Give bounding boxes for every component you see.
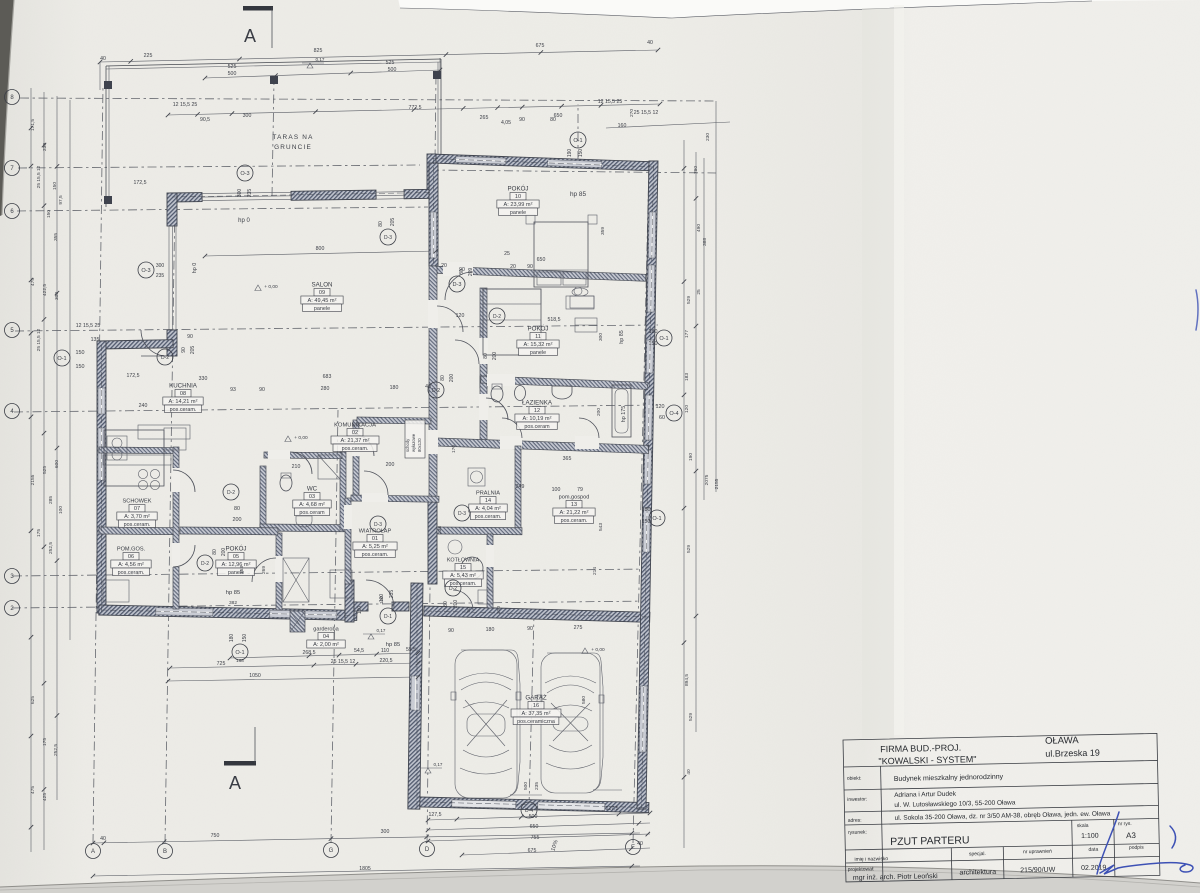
svg-text:D-1: D-1 <box>384 614 392 620</box>
svg-text:09: 09 <box>319 290 325 296</box>
svg-text:490: 490 <box>696 224 702 232</box>
svg-text:90: 90 <box>519 117 525 123</box>
svg-text:175: 175 <box>42 738 48 746</box>
svg-text:garderoba: garderoba <box>313 627 339 633</box>
svg-text:275: 275 <box>574 625 583 631</box>
svg-text:265: 265 <box>480 115 489 121</box>
svg-text:1805: 1805 <box>359 866 371 872</box>
svg-text:97,5: 97,5 <box>58 195 64 205</box>
svg-text:D-2: D-2 <box>201 561 209 567</box>
svg-text:KOMUNIKACJA: KOMUNIKACJA <box>334 423 376 429</box>
svg-text:panele: panele <box>314 306 330 312</box>
svg-text:359: 359 <box>600 227 606 235</box>
svg-text:235: 235 <box>156 273 165 279</box>
svg-text:110: 110 <box>381 648 389 654</box>
svg-text:200: 200 <box>221 548 227 557</box>
svg-text:+ 0,00: + 0,00 <box>591 647 605 653</box>
svg-text:0,17: 0,17 <box>316 57 325 62</box>
svg-text:790: 790 <box>693 166 699 174</box>
svg-text:40: 40 <box>425 384 431 390</box>
svg-text:FIRMA BUD.-PROJ.: FIRMA BUD.-PROJ. <box>880 743 961 755</box>
svg-text:650: 650 <box>554 113 563 119</box>
svg-text:500: 500 <box>388 67 397 73</box>
svg-text:135: 135 <box>91 337 100 343</box>
svg-text:TARAS NA: TARAS NA <box>272 134 313 141</box>
svg-text:220,5: 220,5 <box>380 658 393 664</box>
svg-text:79: 79 <box>577 487 583 493</box>
svg-text:355: 355 <box>53 233 59 241</box>
svg-text:D-3: D-3 <box>384 235 392 241</box>
svg-text:171,5: 171,5 <box>30 119 36 131</box>
svg-text:pos.ceram: pos.ceram <box>524 424 550 430</box>
svg-text:16: 16 <box>533 703 539 709</box>
svg-text:O-1: O-1 <box>652 516 661 522</box>
svg-text:750: 750 <box>211 833 220 839</box>
svg-text:100: 100 <box>357 606 363 615</box>
svg-text:obiekt:: obiekt: <box>847 776 862 782</box>
svg-text:D-2: D-2 <box>493 314 501 320</box>
svg-text:inwestor:: inwestor: <box>847 797 867 803</box>
svg-text:hp 175: hp 175 <box>621 406 627 423</box>
svg-text:architektura: architektura <box>959 869 996 877</box>
svg-text:205: 205 <box>190 346 196 355</box>
svg-text:O-3: O-3 <box>240 171 249 177</box>
svg-text:A: 23,99 m²: A: 23,99 m² <box>504 202 533 208</box>
svg-text:214: 214 <box>592 567 598 575</box>
svg-text:2155: 2155 <box>714 478 720 489</box>
svg-text:90: 90 <box>466 607 472 613</box>
svg-text:panele: panele <box>530 350 546 356</box>
svg-text:hp 85: hp 85 <box>570 191 586 198</box>
svg-text:93: 93 <box>230 387 236 393</box>
svg-text:365: 365 <box>563 456 572 462</box>
svg-text:200: 200 <box>449 374 455 383</box>
svg-text:120: 120 <box>656 404 665 410</box>
svg-text:pos.ceram.: pos.ceram. <box>124 522 151 528</box>
svg-text:O-1: O-1 <box>573 138 582 144</box>
svg-text:330: 330 <box>199 376 208 382</box>
svg-text:pos.ceram.: pos.ceram. <box>118 570 145 576</box>
svg-text:175: 175 <box>36 529 42 537</box>
svg-text:40: 40 <box>647 40 653 46</box>
svg-text:pom.gospod: pom.gospod <box>559 495 590 501</box>
svg-text:pos.ceram: pos.ceram <box>299 510 325 516</box>
svg-text:08: 08 <box>180 391 186 397</box>
svg-text:200: 200 <box>492 352 498 361</box>
svg-text:525: 525 <box>228 64 237 70</box>
svg-text:80: 80 <box>378 221 384 227</box>
svg-text:nr uprawnień: nr uprawnień <box>1023 849 1052 856</box>
svg-text:skala: skala <box>1077 823 1089 829</box>
svg-text:252,5: 252,5 <box>48 542 54 554</box>
svg-text:183: 183 <box>684 373 690 381</box>
svg-text:02: 02 <box>352 430 358 436</box>
svg-text:D-2: D-2 <box>432 388 440 394</box>
svg-text:683: 683 <box>323 374 332 380</box>
svg-text:25: 25 <box>696 289 702 295</box>
svg-text:POM.GOS.: POM.GOS. <box>117 547 146 553</box>
svg-text:529: 529 <box>686 545 692 553</box>
svg-text:150: 150 <box>76 364 85 370</box>
svg-text:54,5: 54,5 <box>354 648 364 654</box>
svg-text:280: 280 <box>321 386 330 392</box>
svg-text:825: 825 <box>314 48 323 54</box>
svg-text:12 15,5 25: 12 15,5 25 <box>173 102 198 108</box>
svg-text:hp 0: hp 0 <box>238 218 250 224</box>
svg-text:imię i nazwisko: imię i nazwisko <box>854 856 888 863</box>
svg-text:529: 529 <box>686 296 692 304</box>
svg-text:pos.ceram.: pos.ceram. <box>342 446 369 452</box>
svg-text:180: 180 <box>649 329 658 335</box>
svg-text:90: 90 <box>527 626 533 632</box>
svg-text:20: 20 <box>441 263 447 269</box>
svg-text:422,5: 422,5 <box>42 284 48 296</box>
svg-text:625: 625 <box>30 696 36 704</box>
svg-text:D-3: D-3 <box>374 522 382 528</box>
svg-text:235: 235 <box>389 590 395 599</box>
svg-text:0,17: 0,17 <box>377 628 386 633</box>
svg-text:0,17: 0,17 <box>434 762 443 767</box>
svg-text:rysunek:: rysunek: <box>848 830 867 836</box>
svg-text:POKÓJ: POKÓJ <box>508 186 529 193</box>
svg-text:13: 13 <box>571 502 577 508</box>
svg-text:80: 80 <box>440 375 446 381</box>
svg-text:55,5: 55,5 <box>406 647 416 653</box>
svg-text:G: G <box>329 848 334 854</box>
svg-text:90: 90 <box>527 264 533 270</box>
svg-text:300: 300 <box>156 263 165 269</box>
svg-text:hp 0: hp 0 <box>192 263 198 274</box>
svg-text:A: 5,25 m²: A: 5,25 m² <box>362 544 388 550</box>
svg-text:hp 85: hp 85 <box>226 590 241 596</box>
svg-text:pos.ceram.: pos.ceram. <box>170 407 197 413</box>
svg-text:D-4: D-4 <box>525 808 533 814</box>
svg-text:01: 01 <box>372 536 378 542</box>
svg-text:specjal.: specjal. <box>969 851 986 857</box>
svg-text:177: 177 <box>684 330 690 338</box>
svg-text:800: 800 <box>316 246 325 252</box>
svg-text:150: 150 <box>52 182 58 190</box>
svg-text:14: 14 <box>485 498 491 504</box>
svg-text:ŁAZIENKA: ŁAZIENKA <box>522 400 553 407</box>
svg-text:150: 150 <box>242 634 248 643</box>
svg-text:12: 12 <box>534 408 540 414</box>
svg-text:80x120: 80x120 <box>417 438 422 452</box>
svg-text:2155: 2155 <box>30 474 36 485</box>
svg-text:PRALNIA: PRALNIA <box>476 491 500 497</box>
svg-text:A: 10,19 m²: A: 10,19 m² <box>523 416 552 422</box>
svg-text:D-2: D-2 <box>227 490 235 496</box>
svg-text:80: 80 <box>483 353 489 359</box>
svg-text:300: 300 <box>237 189 243 198</box>
svg-text:190: 190 <box>567 149 573 158</box>
svg-text:300: 300 <box>598 333 604 341</box>
svg-text:schody: schody <box>405 438 410 452</box>
svg-text:A3: A3 <box>1126 831 1137 840</box>
svg-text:1:100: 1:100 <box>1081 833 1099 840</box>
svg-text:25 15,5 12: 25 15,5 12 <box>331 659 356 665</box>
svg-text:40: 40 <box>637 841 643 847</box>
svg-text:300: 300 <box>381 829 390 835</box>
svg-text:529: 529 <box>688 713 694 721</box>
svg-text:285: 285 <box>48 496 54 504</box>
svg-text:A: 2,00 m²: A: 2,00 m² <box>313 642 339 648</box>
svg-text:12 15,5 25: 12 15,5 25 <box>76 323 101 329</box>
svg-text:hp 85: hp 85 <box>619 330 625 344</box>
svg-text:500: 500 <box>523 782 529 790</box>
svg-text:4,05: 4,05 <box>501 120 511 126</box>
svg-text:Adriana i Artur Dudek: Adriana i Artur Dudek <box>894 791 957 799</box>
svg-text:GARAŻ: GARAŻ <box>525 695 547 702</box>
svg-text:A: 15,32 m²: A: 15,32 m² <box>524 342 553 348</box>
svg-text:120: 120 <box>684 405 690 413</box>
svg-text:pos.ceram.: pos.ceram. <box>561 518 588 524</box>
svg-text:KOTŁOWNIA: KOTŁOWNIA <box>447 558 480 564</box>
svg-text:90: 90 <box>187 334 193 340</box>
svg-text:543: 543 <box>598 523 604 531</box>
svg-text:382: 382 <box>229 600 237 606</box>
svg-text:225: 225 <box>144 53 153 59</box>
svg-text:+ 0,00: + 0,00 <box>264 284 278 290</box>
svg-text:pos.ceram.: pos.ceram. <box>475 514 502 520</box>
svg-text:500: 500 <box>228 71 237 77</box>
svg-text:D-2: D-2 <box>449 586 457 592</box>
svg-text:A: 37,35 m²: A: 37,35 m² <box>522 711 551 717</box>
svg-text:100: 100 <box>58 506 64 514</box>
svg-text:25 15,5 12: 25 15,5 12 <box>36 328 42 351</box>
svg-text:pos.ceramiczna: pos.ceramiczna <box>517 719 555 725</box>
svg-text:180: 180 <box>642 507 651 513</box>
svg-text:60: 60 <box>659 415 665 421</box>
svg-text:podpis: podpis <box>1129 845 1144 851</box>
svg-text:POKÓJ: POKÓJ <box>528 326 549 333</box>
svg-text:200: 200 <box>596 408 602 416</box>
svg-text:projektował:: projektował: <box>848 866 875 873</box>
svg-text:235: 235 <box>534 782 540 790</box>
svg-text:150: 150 <box>46 210 52 218</box>
svg-text:180: 180 <box>486 627 495 633</box>
svg-text:05: 05 <box>233 554 239 560</box>
svg-text:200: 200 <box>453 600 459 609</box>
svg-text:268,5: 268,5 <box>303 650 316 656</box>
svg-text:475: 475 <box>30 786 36 794</box>
svg-text:WC: WC <box>307 486 318 493</box>
svg-text:894,5: 894,5 <box>684 674 690 686</box>
svg-text:D: D <box>425 847 430 853</box>
svg-text:518,5: 518,5 <box>548 317 561 323</box>
svg-text:25 15,5 12: 25 15,5 12 <box>36 165 42 188</box>
svg-text:100: 100 <box>552 487 561 493</box>
svg-text:580: 580 <box>581 696 587 704</box>
svg-text:03: 03 <box>309 494 315 500</box>
svg-text:90: 90 <box>259 387 265 393</box>
svg-text:SALON: SALON <box>312 282 333 289</box>
svg-text:235: 235 <box>247 189 253 198</box>
svg-text:675: 675 <box>528 848 537 854</box>
svg-text:SCHOWEK: SCHOWEK <box>123 499 152 505</box>
svg-text:127,5: 127,5 <box>429 812 442 818</box>
svg-text:230: 230 <box>705 133 711 141</box>
svg-text:A: A <box>229 773 241 793</box>
svg-text:525: 525 <box>386 60 395 66</box>
svg-text:A: 21,22 m²: A: 21,22 m² <box>560 510 589 516</box>
svg-text:269: 269 <box>261 566 267 574</box>
svg-text:A: A <box>244 26 256 46</box>
svg-text:11: 11 <box>535 334 541 340</box>
svg-text:150: 150 <box>649 341 658 347</box>
svg-text:O-1: O-1 <box>57 356 66 362</box>
svg-text:650: 650 <box>530 824 539 830</box>
svg-text:160: 160 <box>618 123 627 129</box>
svg-text:nr rys.: nr rys. <box>1118 821 1132 827</box>
svg-text:2075: 2075 <box>704 474 710 485</box>
svg-text:A: 4,68 m²: A: 4,68 m² <box>299 502 325 508</box>
svg-text:238: 238 <box>437 526 443 534</box>
svg-text:A: 12,96 m²: A: 12,96 m² <box>222 562 251 568</box>
svg-text:205: 205 <box>390 218 396 227</box>
svg-text:PZUT PARTERU: PZUT PARTERU <box>890 834 970 848</box>
svg-text:KUCHNIA: KUCHNIA <box>169 383 198 390</box>
svg-text:data: data <box>1088 847 1098 853</box>
svg-text:B: B <box>163 849 167 855</box>
svg-text:04: 04 <box>323 634 329 640</box>
svg-text:O-4: O-4 <box>669 411 678 417</box>
svg-text:D-3: D-3 <box>452 282 461 288</box>
svg-text:25 15,5 12: 25 15,5 12 <box>634 110 659 116</box>
svg-text:90: 90 <box>459 267 465 273</box>
svg-text:A: 14,21 m²: A: 14,21 m² <box>169 399 198 405</box>
svg-text:200: 200 <box>496 606 502 614</box>
svg-text:200: 200 <box>233 517 242 523</box>
svg-text:"KOWALSKI - SYSTEM": "KOWALSKI - SYSTEM" <box>878 754 976 766</box>
svg-text:06: 06 <box>128 554 134 560</box>
svg-text:675: 675 <box>536 43 545 49</box>
svg-text:127,5: 127,5 <box>606 806 619 812</box>
svg-text:215/90/UW: 215/90/UW <box>1020 867 1056 875</box>
svg-text:168: 168 <box>236 658 244 663</box>
svg-text:252,5: 252,5 <box>53 744 59 756</box>
svg-text:270: 270 <box>629 109 635 117</box>
svg-text:O-1: O-1 <box>235 650 244 656</box>
svg-text:150: 150 <box>578 149 584 158</box>
svg-text:80: 80 <box>443 601 449 607</box>
svg-text:POKÓJ: POKÓJ <box>226 546 247 553</box>
svg-text:OŁAWA: OŁAWA <box>1045 735 1079 747</box>
svg-text:GRUNCIE: GRUNCIE <box>274 144 312 151</box>
svg-text:725: 725 <box>217 661 226 667</box>
svg-text:panele: panele <box>510 210 526 216</box>
svg-text:90,5: 90,5 <box>200 117 210 123</box>
svg-text:200: 200 <box>386 462 395 468</box>
svg-text:180: 180 <box>229 634 235 643</box>
svg-text:500: 500 <box>529 814 538 820</box>
svg-text:07: 07 <box>134 506 140 512</box>
svg-text:wyłazowe: wyłazowe <box>411 433 416 452</box>
svg-text:650: 650 <box>537 257 546 263</box>
svg-text:20: 20 <box>510 264 516 270</box>
svg-text:755: 755 <box>531 835 540 841</box>
svg-text:90: 90 <box>448 628 454 634</box>
svg-text:ul.Brzeska 19: ul.Brzeska 19 <box>1045 748 1100 759</box>
svg-text:A: 4,56 m²: A: 4,56 m² <box>118 562 144 568</box>
svg-text:172,5: 172,5 <box>127 373 140 379</box>
svg-text:210: 210 <box>292 464 301 470</box>
svg-text:209: 209 <box>468 268 474 277</box>
svg-text:100: 100 <box>379 596 385 604</box>
svg-text:388: 388 <box>702 238 708 246</box>
svg-text:600: 600 <box>54 460 60 468</box>
svg-text:adres:: adres: <box>848 818 862 824</box>
svg-text:12 15,5 25: 12 15,5 25 <box>598 99 623 105</box>
svg-text:80: 80 <box>234 506 240 512</box>
svg-text:120: 120 <box>456 313 465 319</box>
svg-text:80: 80 <box>212 549 218 555</box>
svg-text:+ 0,00: + 0,00 <box>294 435 308 441</box>
svg-text:O-1: O-1 <box>659 336 668 342</box>
svg-text:D-3: D-3 <box>458 511 466 517</box>
svg-text:O-3: O-3 <box>141 268 150 274</box>
svg-text:163: 163 <box>239 566 245 574</box>
svg-text:A: 3,70 m²: A: 3,70 m² <box>124 514 150 520</box>
svg-text:150: 150 <box>642 519 651 525</box>
svg-text:A: 21,37 m²: A: 21,37 m² <box>341 438 370 444</box>
svg-text:525: 525 <box>42 466 48 474</box>
svg-text:249: 249 <box>516 484 525 490</box>
svg-text:40: 40 <box>686 769 692 775</box>
svg-text:475: 475 <box>30 278 36 286</box>
svg-text:180: 180 <box>390 385 399 391</box>
svg-text:300: 300 <box>243 113 252 119</box>
svg-text:90: 90 <box>181 347 187 353</box>
svg-text:A: A <box>91 849 95 855</box>
svg-text:1050: 1050 <box>249 673 261 679</box>
svg-text:D-2: D-2 <box>161 355 169 361</box>
svg-text:240: 240 <box>139 403 148 409</box>
svg-text:A: 5,43 m²: A: 5,43 m² <box>450 573 476 579</box>
svg-text:425: 425 <box>42 793 48 801</box>
svg-text:A: 4,04 m²: A: 4,04 m² <box>475 506 501 512</box>
svg-text:172,5: 172,5 <box>134 180 147 186</box>
svg-text:pos.ceram.: pos.ceram. <box>362 552 389 558</box>
svg-text:170: 170 <box>451 445 457 453</box>
svg-text:190: 190 <box>688 453 694 461</box>
svg-text:10: 10 <box>515 194 521 200</box>
svg-text:A: 49,45 m²: A: 49,45 m² <box>308 298 337 304</box>
svg-text:150: 150 <box>76 350 85 356</box>
svg-text:25: 25 <box>504 251 510 257</box>
svg-text:15: 15 <box>460 565 466 571</box>
